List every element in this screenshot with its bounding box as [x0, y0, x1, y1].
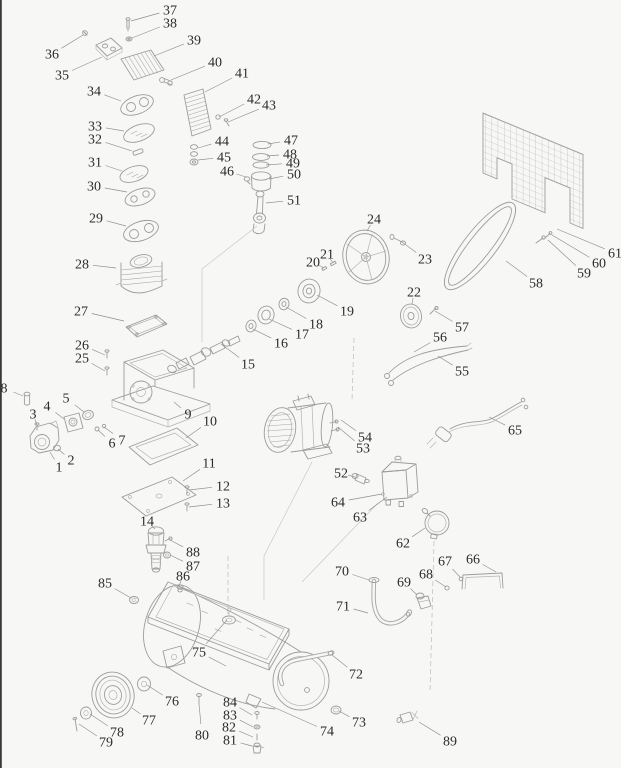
- leader-line-53: [338, 427, 355, 441]
- leader-lines: [14, 13, 605, 746]
- leader-line-54: [341, 420, 356, 431]
- part-45-washer: [190, 159, 198, 165]
- part-number-22: 22: [407, 286, 421, 301]
- leader-line-84: [240, 708, 253, 715]
- part-number-62: 62: [396, 537, 410, 552]
- diagram-canvas: 1234567891011121314151617181920212223242…: [0, 0, 621, 768]
- part-number-41: 41: [235, 67, 249, 82]
- part-number-36: 36: [45, 48, 59, 63]
- part-number-32: 32: [88, 133, 102, 148]
- part-number-67: 67: [438, 555, 452, 570]
- part-number-69: 69: [397, 576, 411, 591]
- leader-line-64: [349, 494, 382, 500]
- part-number-71: 71: [336, 600, 350, 615]
- part-23-axle-bolt: [390, 235, 406, 246]
- leader-line-68: [435, 580, 446, 587]
- part-number-19: 19: [340, 305, 354, 320]
- leader-line-59: [548, 240, 576, 266]
- part-number-72: 72: [349, 668, 363, 683]
- part-number-80: 80: [195, 729, 209, 744]
- part-number-40: 40: [208, 56, 222, 71]
- part-number-26: 26: [75, 339, 89, 354]
- part-number-47: 47: [284, 134, 298, 149]
- part-number-65: 65: [508, 424, 522, 439]
- exploded-parts-diagram: 1234567891011121314151617181920212223242…: [0, 0, 621, 768]
- part-9-crankcase: [112, 350, 210, 427]
- part-10-gasket: [129, 428, 198, 465]
- leader-line-37: [131, 13, 159, 21]
- part-number-51: 51: [287, 194, 301, 209]
- part-44-washers: [191, 145, 198, 157]
- leader-line-39: [154, 44, 184, 56]
- leader-line-77: [132, 708, 141, 714]
- part-16-washer: [244, 319, 257, 334]
- part-number-4: 4: [44, 400, 51, 415]
- part-number-5: 5: [63, 392, 70, 407]
- part-54-motor: [261, 394, 335, 459]
- part-67-bolt: [459, 577, 463, 581]
- part-5-o-ring: [81, 409, 94, 421]
- part-number-63: 63: [353, 511, 367, 526]
- part-40-valve-stop: [160, 78, 173, 86]
- leader-line-76: [147, 685, 163, 695]
- part-number-75: 75: [192, 646, 206, 661]
- part-36-screw: [83, 31, 88, 36]
- part-number-9: 9: [185, 408, 192, 423]
- part-number-81: 81: [223, 734, 237, 749]
- part-number-54: 54: [358, 431, 372, 446]
- part-number-28: 28: [75, 258, 89, 273]
- leader-line-19: [317, 295, 337, 306]
- part-41-cylinder-head: [184, 89, 211, 136]
- leader-line-43: [228, 109, 259, 122]
- part-number-68: 68: [419, 568, 433, 583]
- part-number-11: 11: [202, 457, 215, 472]
- part-51-connecting-rod: [253, 191, 266, 234]
- leader-line-16: [253, 329, 271, 338]
- part-number-89: 89: [443, 735, 457, 750]
- part-number-31: 31: [88, 156, 102, 171]
- part-43-screw: [224, 119, 229, 126]
- part-number-labels: 1234567891011121314151617181920212223242…: [1, 4, 621, 751]
- part-number-33: 33: [88, 120, 102, 135]
- leader-line-9: [174, 402, 181, 408]
- part-number-45: 45: [217, 151, 231, 166]
- leader-line-26: [92, 349, 105, 355]
- part-50-piston: [252, 172, 272, 191]
- leader-line-11: [183, 469, 200, 481]
- part-number-44: 44: [215, 135, 229, 150]
- part-number-79: 79: [99, 736, 113, 751]
- part-number-56: 56: [433, 331, 447, 346]
- part-number-85: 85: [98, 577, 112, 592]
- part-number-30: 30: [87, 180, 101, 195]
- leader-line-8: [14, 392, 24, 396]
- leader-line-63: [369, 497, 387, 511]
- leader-line-67: [453, 569, 461, 577]
- leader-line-6: [98, 430, 105, 437]
- leader-line-18: [286, 307, 306, 319]
- part-number-83: 83: [223, 709, 237, 724]
- part-1-2-air-filter: [30, 421, 61, 453]
- part-number-1: 1: [56, 461, 63, 476]
- part-number-76: 76: [165, 695, 179, 710]
- leader-line-29: [107, 221, 126, 226]
- leader-line-31: [105, 166, 122, 172]
- leader-line-87: [170, 555, 183, 561]
- part-30-valve-plate: [123, 185, 157, 210]
- leader-line-69: [411, 589, 418, 596]
- part-number-59: 59: [577, 267, 591, 282]
- part-89-drain-cock: [396, 711, 418, 723]
- leader-line-32: [106, 142, 133, 151]
- part-number-52: 52: [334, 467, 348, 482]
- part-38-washer: [126, 37, 132, 41]
- part-33-valve-plate: [121, 120, 157, 146]
- leader-line-88: [170, 540, 183, 547]
- leader-line-82: [239, 731, 253, 737]
- part-number-18: 18: [309, 318, 323, 333]
- part-58-belt: [434, 194, 526, 299]
- part-8-intake-filter: [24, 392, 30, 405]
- part-15-crankshaft: [166, 336, 240, 374]
- leader-line-73: [339, 711, 349, 717]
- leader-line-55: [438, 356, 453, 365]
- part-number-17: 17: [295, 328, 309, 343]
- leader-line-75: [209, 657, 226, 666]
- leader-line-10: [186, 427, 201, 438]
- leader-line-72: [332, 655, 347, 667]
- leader-line-41: [205, 78, 232, 92]
- leader-line-60: [552, 235, 590, 257]
- part-17-bearing: [256, 304, 276, 326]
- part-84-bolt: [255, 712, 259, 720]
- leader-line-33: [106, 128, 124, 131]
- part-number-7: 7: [119, 434, 126, 449]
- part-35-filter-box: [96, 38, 122, 60]
- leader-line-17: [269, 319, 292, 329]
- leader-line-56: [414, 343, 431, 353]
- part-number-55: 55: [455, 365, 469, 380]
- part-48-piston-ring: [253, 154, 270, 161]
- part-number-23: 23: [418, 253, 432, 268]
- part-number-42: 42: [247, 93, 261, 108]
- leader-line-81: [241, 743, 252, 746]
- part-73-cap: [331, 706, 341, 714]
- part-number-70: 70: [335, 565, 349, 580]
- leader-line-58: [506, 261, 527, 277]
- part-47-piston-ring: [253, 141, 271, 148]
- part-number-6: 6: [109, 437, 116, 452]
- part-22-pulley: [399, 302, 424, 329]
- part-number-73: 73: [352, 716, 366, 731]
- part-24-flywheel: [338, 226, 394, 288]
- leader-line-42: [219, 104, 244, 117]
- part-37-bolt: [126, 18, 130, 31]
- part-79-axle-pin: [73, 717, 77, 731]
- part-number-10: 10: [203, 415, 217, 430]
- part-number-3: 3: [30, 408, 37, 423]
- part-number-39: 39: [187, 34, 201, 49]
- part-number-77: 77: [142, 714, 156, 729]
- leader-line-61: [557, 229, 605, 249]
- leader-line-89: [419, 722, 441, 735]
- leader-line-52: [348, 475, 355, 477]
- part-number-25: 25: [75, 352, 89, 367]
- part-number-12: 12: [216, 480, 230, 495]
- part-number-57: 57: [455, 321, 469, 336]
- part-number-16: 16: [274, 337, 288, 352]
- part-number-64: 64: [331, 496, 345, 511]
- leader-line-85: [115, 589, 132, 599]
- part-81-drain-valve: [253, 743, 264, 753]
- leader-line-7: [104, 427, 113, 434]
- part-number-8: 8: [1, 382, 8, 397]
- part-number-61: 61: [608, 247, 621, 262]
- part-number-20: 20: [306, 256, 320, 271]
- part-number-43: 43: [262, 99, 276, 114]
- part-29-head-gasket: [121, 216, 161, 245]
- part-78-washer: [81, 707, 92, 719]
- leader-line-65: [489, 417, 505, 425]
- part-75-tank: [134, 578, 329, 710]
- leader-line-13: [189, 504, 212, 507]
- part-number-15: 15: [241, 358, 255, 373]
- leader-line-38: [132, 27, 160, 38]
- leader-line-12: [189, 487, 212, 490]
- part-number-34: 34: [87, 85, 101, 100]
- part-32-reed: [133, 148, 144, 155]
- leader-line-35: [72, 57, 102, 71]
- leader-line-28: [93, 265, 116, 268]
- leader-line-46: [237, 174, 247, 177]
- part-83-washer: [254, 725, 260, 729]
- leader-line-30: [105, 188, 127, 192]
- part-57-screw: [430, 306, 438, 314]
- part-number-58: 58: [529, 277, 543, 292]
- part-26-bolt: [105, 350, 109, 358]
- part-19-hub: [296, 277, 323, 305]
- part-77-wheel: [87, 668, 139, 723]
- leader-line-36: [61, 35, 83, 48]
- part-number-13: 13: [216, 497, 230, 512]
- part-69-elbow-fitting: [416, 593, 431, 609]
- part-18-washer: [278, 297, 291, 311]
- leader-line-51: [266, 201, 283, 203]
- part-87-ring: [164, 552, 171, 558]
- leader-line-27: [92, 314, 124, 322]
- leader-line-57: [435, 311, 453, 321]
- leader-line-1: [50, 452, 55, 460]
- part-number-66: 66: [466, 553, 480, 568]
- leader-line-80: [199, 704, 201, 724]
- leader-line-40: [171, 66, 205, 80]
- part-28-cylinder: [116, 253, 167, 293]
- part-number-35: 35: [55, 69, 69, 84]
- leader-line-83: [240, 720, 253, 727]
- leader-line-44: [198, 144, 211, 148]
- part-31-valve-plate: [118, 162, 150, 185]
- part-62-pressure-gauge: [421, 507, 449, 539]
- leader-line-34: [104, 95, 121, 101]
- part-number-50: 50: [287, 168, 301, 183]
- part-number-46: 46: [220, 165, 234, 180]
- part-13-screw: [185, 503, 189, 511]
- leader-line-79: [79, 724, 97, 736]
- part-46-wrist-pin: [244, 177, 250, 184]
- leader-line-70: [352, 575, 369, 581]
- part-52-fitting: [352, 474, 369, 485]
- part-63-pressure-switch: [382, 456, 418, 506]
- leader-line-4: [56, 413, 65, 420]
- part-61-belt-guard-grille: [483, 113, 583, 228]
- part-76-hubcap: [138, 677, 151, 691]
- part-number-27: 27: [74, 305, 88, 320]
- part-4-elbow: [64, 413, 83, 432]
- leader-line-62: [412, 528, 425, 537]
- leader-line-66: [483, 564, 496, 572]
- part-number-21: 21: [320, 248, 334, 263]
- part-number-84: 84: [223, 696, 237, 711]
- part-number-24: 24: [367, 213, 381, 228]
- leader-line-23: [402, 242, 416, 253]
- leader-line-45: [198, 158, 213, 160]
- part-27-cylinder-gasket: [126, 315, 167, 337]
- part-25-bolt: [105, 367, 109, 375]
- part-11-base-plate: [122, 477, 196, 516]
- part-80-bolt: [197, 694, 202, 705]
- leader-line-25: [92, 363, 105, 371]
- part-66-unloader-pipe: [462, 573, 503, 589]
- part-number-2: 2: [68, 454, 75, 469]
- part-number-87: 87: [186, 560, 200, 575]
- leader-line-71: [354, 609, 368, 613]
- part-14-regulator: [146, 527, 166, 572]
- part-53-motor-bolts: [330, 420, 339, 431]
- part-number-14: 14: [140, 515, 154, 530]
- part-number-29: 29: [89, 212, 103, 227]
- part-number-88: 88: [186, 546, 200, 561]
- leader-line-2: [58, 449, 65, 455]
- part-34-valve-plate: [118, 91, 156, 120]
- part-number-74: 74: [320, 725, 334, 740]
- part-number-38: 38: [163, 17, 177, 32]
- leader-line-5: [75, 405, 84, 412]
- leader-line-74: [262, 702, 317, 727]
- part-number-60: 60: [592, 257, 606, 272]
